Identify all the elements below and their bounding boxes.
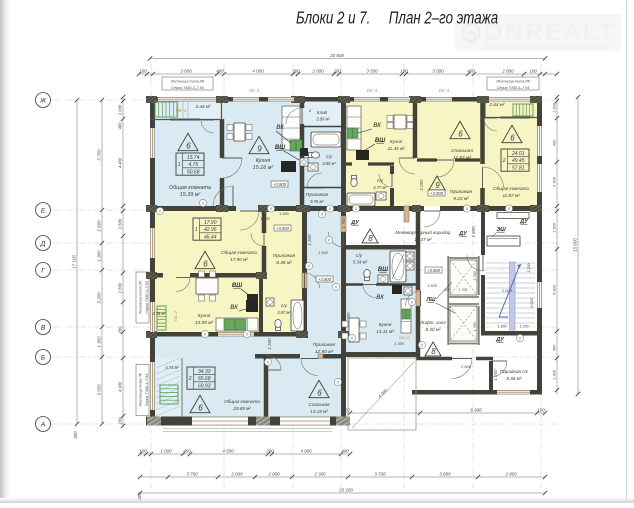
svg-text:3 600: 3 600 xyxy=(439,472,451,477)
svg-text:ОК–3: ОК–3 xyxy=(249,88,260,93)
svg-text:ONREALT: ONREALT xyxy=(484,19,616,46)
svg-text:13.11 м²: 13.11 м² xyxy=(376,329,394,335)
svg-text:б: б xyxy=(204,333,206,337)
svg-text:5 700: 5 700 xyxy=(97,149,102,161)
svg-text:2 000: 2 000 xyxy=(311,69,324,74)
svg-text:400: 400 xyxy=(467,69,475,74)
svg-text:Кухня: Кухня xyxy=(390,139,403,144)
svg-text:11.87 м²: 11.87 м² xyxy=(453,155,471,161)
svg-text:1 200: 1 200 xyxy=(527,264,531,273)
svg-text:ВК: ВК xyxy=(373,123,381,129)
svg-text:б: б xyxy=(508,207,510,211)
svg-text:4 500: 4 500 xyxy=(222,449,234,454)
svg-text:с/у: с/у xyxy=(377,178,384,184)
svg-text:1 600: 1 600 xyxy=(471,226,476,238)
svg-text:Лестница типа ЛК: Лестница типа ЛК xyxy=(139,372,143,408)
svg-text:3 500: 3 500 xyxy=(432,69,444,74)
svg-text:Лестница типа ЛК: Лестница типа ЛК xyxy=(170,80,206,84)
svg-text:57.81: 57.81 xyxy=(512,166,525,172)
svg-text:17.90: 17.90 xyxy=(204,220,217,226)
svg-text:8: 8 xyxy=(368,234,373,243)
svg-text:б: б xyxy=(337,381,339,385)
svg-text:Прихожая: Прихожая xyxy=(306,192,329,198)
svg-text:34.33: 34.33 xyxy=(198,369,211,375)
svg-text:Спальная: Спальная xyxy=(309,402,330,407)
svg-text:3.85 м²: 3.85 м² xyxy=(322,161,336,166)
svg-text:400: 400 xyxy=(118,122,123,130)
svg-text:49.45: 49.45 xyxy=(512,158,525,164)
svg-text:15 600: 15 600 xyxy=(573,238,578,252)
svg-text:3 600: 3 600 xyxy=(180,69,192,74)
svg-text:1 000: 1 000 xyxy=(552,102,557,113)
svg-text:4 000: 4 000 xyxy=(300,449,312,454)
svg-text:Общая комната: Общая комната xyxy=(493,186,529,191)
svg-text:Серия Т450.3–7.94: Серия Т450.3–7.94 xyxy=(171,86,204,90)
svg-text:9.76 м²: 9.76 м² xyxy=(310,199,324,204)
svg-text:17 100: 17 100 xyxy=(72,255,77,269)
svg-text:400: 400 xyxy=(552,344,557,351)
svg-text:4.76: 4.76 xyxy=(188,162,198,168)
svg-text:Лестница типа ЛК: Лестница типа ЛК xyxy=(139,280,143,316)
svg-text:2.76 м²: 2.76 м² xyxy=(151,311,166,316)
svg-text:1 500: 1 500 xyxy=(552,222,557,233)
svg-text:3.09 м²: 3.09 м² xyxy=(316,117,330,122)
svg-text:4 900: 4 900 xyxy=(118,381,123,392)
svg-text:6 600: 6 600 xyxy=(470,408,482,413)
svg-text:б: б xyxy=(329,207,331,211)
svg-text:Лестница типа ЛК: Лестница типа ЛК xyxy=(495,80,531,84)
svg-text:100: 100 xyxy=(400,69,408,74)
svg-text:9.23 м²: 9.23 м² xyxy=(453,196,469,202)
svg-text:3.87 м²: 3.87 м² xyxy=(277,310,291,315)
svg-text:65.68: 65.68 xyxy=(198,376,211,382)
svg-text:б: б xyxy=(159,210,161,214)
svg-text:с/у: с/у xyxy=(281,303,288,309)
svg-text:100: 100 xyxy=(537,408,545,413)
svg-text:3.44 м²: 3.44 м² xyxy=(196,104,211,109)
svg-text:с/у: с/у xyxy=(326,154,333,160)
svg-text:3 200: 3 200 xyxy=(97,292,102,304)
svg-text:100: 100 xyxy=(139,449,147,454)
svg-text:1 300: 1 300 xyxy=(552,369,557,380)
svg-text:б: б xyxy=(335,286,337,290)
svg-text:+3.900: +3.900 xyxy=(430,191,444,196)
svg-text:Парадная Н1: Парадная Н1 xyxy=(500,369,529,374)
svg-text:300: 300 xyxy=(292,69,300,74)
svg-text:Блоки 2 и 7. План 2–го эта: Блоки 2 и 7. План 2–го этажа xyxy=(296,9,498,28)
svg-text:+3.900: +3.900 xyxy=(427,268,441,273)
svg-text:2 600: 2 600 xyxy=(97,220,102,233)
svg-text:8: 8 xyxy=(431,347,436,356)
svg-text:69.93: 69.93 xyxy=(198,384,211,390)
svg-text:Серия Т450.3–7.94: Серия Т450.3–7.94 xyxy=(497,86,530,90)
svg-text:Кухня: Кухня xyxy=(256,158,270,164)
svg-text:Г: Г xyxy=(41,267,45,274)
svg-text:13.18 м²: 13.18 м² xyxy=(310,409,328,414)
svg-text:400: 400 xyxy=(216,69,224,74)
svg-text:б: б xyxy=(355,207,357,211)
svg-text:17.90 м²: 17.90 м² xyxy=(230,257,248,262)
svg-text:11.44 м²: 11.44 м² xyxy=(387,146,405,151)
svg-text:6: 6 xyxy=(186,142,191,151)
svg-text:1 200: 1 200 xyxy=(520,325,529,329)
svg-text:4 400: 4 400 xyxy=(552,176,557,187)
svg-text:4 000: 4 000 xyxy=(252,69,264,74)
svg-text:100: 100 xyxy=(118,417,123,425)
svg-text:б: б xyxy=(270,207,272,211)
svg-text:400: 400 xyxy=(183,449,191,454)
svg-text:1 300: 1 300 xyxy=(97,250,102,262)
svg-text:ОК–2: ОК–2 xyxy=(173,310,178,321)
svg-text:6: 6 xyxy=(317,389,322,398)
svg-text:4.74 м²: 4.74 м² xyxy=(165,365,179,370)
svg-text:ОК–2: ОК–2 xyxy=(399,335,410,340)
svg-text:Серия Т450.3–7.94: Серия Т450.3–7.94 xyxy=(145,281,149,314)
svg-text:2: 2 xyxy=(502,158,506,164)
svg-text:ОК–3: ОК–3 xyxy=(439,88,450,93)
svg-text:Д: Д xyxy=(40,240,46,247)
svg-text:1 950: 1 950 xyxy=(279,212,289,216)
svg-text:8.58 м²: 8.58 м² xyxy=(507,376,522,381)
svg-text:1 000: 1 000 xyxy=(118,104,123,115)
svg-text:300: 300 xyxy=(137,492,142,500)
svg-text:б: б xyxy=(421,344,423,348)
svg-text:6: 6 xyxy=(203,260,208,269)
svg-text:15.74: 15.74 xyxy=(187,155,200,161)
svg-text:Ж: Ж xyxy=(39,97,47,104)
svg-text:Кухня: Кухня xyxy=(379,322,392,328)
svg-text:ОК–4: ОК–4 xyxy=(176,108,187,113)
svg-text:9: 9 xyxy=(435,181,440,190)
svg-text:6: 6 xyxy=(510,134,515,143)
svg-text:2 000: 2 000 xyxy=(230,472,243,477)
svg-text:с/у: с/у xyxy=(356,253,363,259)
svg-text:12.90 м²: 12.90 м² xyxy=(315,349,334,355)
svg-text:15.16 м²: 15.16 м² xyxy=(253,165,274,171)
svg-text:1 390: 1 390 xyxy=(394,342,404,346)
svg-text:А: А xyxy=(40,421,45,428)
svg-text:Кухня: Кухня xyxy=(198,313,211,319)
svg-text:1 750: 1 750 xyxy=(473,323,477,332)
svg-text:1 500: 1 500 xyxy=(427,284,437,288)
svg-text:Прихожая: Прихожая xyxy=(273,253,296,259)
svg-text:3 700: 3 700 xyxy=(374,472,386,477)
svg-text:2 600: 2 600 xyxy=(118,218,123,230)
svg-text:Общая комната: Общая комната xyxy=(221,250,257,255)
svg-text:1 200: 1 200 xyxy=(307,234,312,246)
svg-text:Межквартирный коридор: Межквартирный коридор xyxy=(395,229,451,235)
svg-text:1 800: 1 800 xyxy=(318,251,328,255)
svg-text:200: 200 xyxy=(443,288,450,292)
svg-text:б: б xyxy=(321,213,323,217)
svg-text:2 000: 2 000 xyxy=(419,179,424,192)
svg-text:3 500: 3 500 xyxy=(97,384,102,396)
svg-text:2 800: 2 800 xyxy=(118,282,123,294)
svg-text:15.39 м²: 15.39 м² xyxy=(180,192,201,198)
svg-text:Б: Б xyxy=(41,354,45,361)
svg-text:+3.900: +3.900 xyxy=(276,226,290,231)
svg-text:13.50 м²: 13.50 м² xyxy=(195,320,214,326)
svg-text:3 500: 3 500 xyxy=(366,69,378,74)
svg-text:3 000: 3 000 xyxy=(530,297,534,307)
svg-text:ВК: ВК xyxy=(276,125,284,131)
svg-text:100: 100 xyxy=(529,69,537,74)
svg-text:Серия Т450.3–7.94: Серия Т450.3–7.94 xyxy=(145,374,149,407)
svg-text:6: 6 xyxy=(458,130,463,139)
svg-text:+3.900: +3.900 xyxy=(318,277,332,282)
svg-text:б: б xyxy=(351,337,353,341)
svg-text:Лифт. холл: Лифт. холл xyxy=(419,320,446,325)
svg-text:200: 200 xyxy=(265,449,274,454)
svg-text:Е: Е xyxy=(41,207,46,214)
svg-text:200: 200 xyxy=(332,69,341,74)
svg-text:2 600: 2 600 xyxy=(501,288,513,293)
svg-text:1 950: 1 950 xyxy=(260,217,270,221)
svg-text:2 300: 2 300 xyxy=(313,472,326,477)
svg-text:б: б xyxy=(519,337,521,341)
svg-text:2 800: 2 800 xyxy=(501,69,514,74)
svg-text:Спальная: Спальная xyxy=(451,148,473,154)
svg-text:46.44: 46.44 xyxy=(204,235,217,241)
svg-text:24.01: 24.01 xyxy=(511,151,525,157)
svg-text:4 400: 4 400 xyxy=(118,157,123,168)
svg-text:2 700: 2 700 xyxy=(473,272,477,282)
svg-text:2 600: 2 600 xyxy=(460,364,472,369)
svg-text:42.96: 42.96 xyxy=(204,227,217,233)
svg-text:2 900: 2 900 xyxy=(504,472,517,477)
svg-text:ОК–3: ОК–3 xyxy=(367,88,378,93)
svg-text:1 200: 1 200 xyxy=(267,338,272,350)
svg-text:1 700: 1 700 xyxy=(459,288,468,292)
svg-text:5.34 м²: 5.34 м² xyxy=(353,260,368,265)
svg-text:б: б xyxy=(411,301,413,305)
svg-text:+3.900: +3.900 xyxy=(273,182,287,187)
svg-text:6: 6 xyxy=(198,404,203,413)
svg-text:5 600: 5 600 xyxy=(552,284,557,295)
svg-text:50.68: 50.68 xyxy=(187,170,200,176)
svg-text:2: 2 xyxy=(188,376,192,382)
svg-text:19.37 м²: 19.37 м² xyxy=(414,237,432,242)
svg-text:1 700: 1 700 xyxy=(341,217,346,229)
svg-text:100: 100 xyxy=(139,69,147,74)
svg-text:ВК: ВК xyxy=(376,295,384,301)
svg-text:б: б xyxy=(466,207,468,211)
svg-text:б: б xyxy=(328,239,330,243)
svg-text:1: 1 xyxy=(178,162,181,168)
svg-text:Прихожая: Прихожая xyxy=(450,189,473,195)
svg-text:1 200: 1 200 xyxy=(493,369,498,381)
svg-text:2.64 м²: 2.64 м² xyxy=(489,102,505,107)
svg-text:20 200: 20 200 xyxy=(338,488,353,493)
svg-text:В: В xyxy=(41,324,46,331)
svg-text:2 000: 2 000 xyxy=(267,472,280,477)
svg-text:б: б xyxy=(202,202,204,206)
svg-text:400: 400 xyxy=(341,449,349,454)
svg-text:Прихожая: Прихожая xyxy=(313,342,336,348)
svg-text:Общая комната: Общая комната xyxy=(169,185,211,191)
svg-text:20.69 м²: 20.69 м² xyxy=(232,406,251,411)
svg-text:200: 200 xyxy=(118,326,123,335)
svg-text:1 000: 1 000 xyxy=(160,449,172,454)
svg-text:3 700: 3 700 xyxy=(186,472,198,477)
svg-text:б: б xyxy=(308,265,310,269)
svg-text:4.77 м²: 4.77 м² xyxy=(373,185,387,190)
svg-text:8.40 м²: 8.40 м² xyxy=(426,327,441,332)
svg-text:300: 300 xyxy=(73,431,78,439)
svg-text:б: б xyxy=(246,333,248,337)
svg-text:б: б xyxy=(267,361,269,365)
svg-text:Общая комната: Общая комната xyxy=(224,399,260,404)
svg-text:ВК: ВК xyxy=(230,305,238,311)
svg-text:1 300: 1 300 xyxy=(97,336,102,348)
svg-text:400: 400 xyxy=(552,139,557,146)
svg-text:Клад: Клад xyxy=(317,110,328,115)
svg-text:11.87 м²: 11.87 м² xyxy=(502,193,520,198)
svg-text:20 800: 20 800 xyxy=(329,53,344,58)
svg-text:9: 9 xyxy=(257,145,262,154)
svg-text:1 200: 1 200 xyxy=(498,325,507,329)
svg-text:8.38 м²: 8.38 м² xyxy=(276,260,292,266)
svg-text:1: 1 xyxy=(195,227,198,233)
